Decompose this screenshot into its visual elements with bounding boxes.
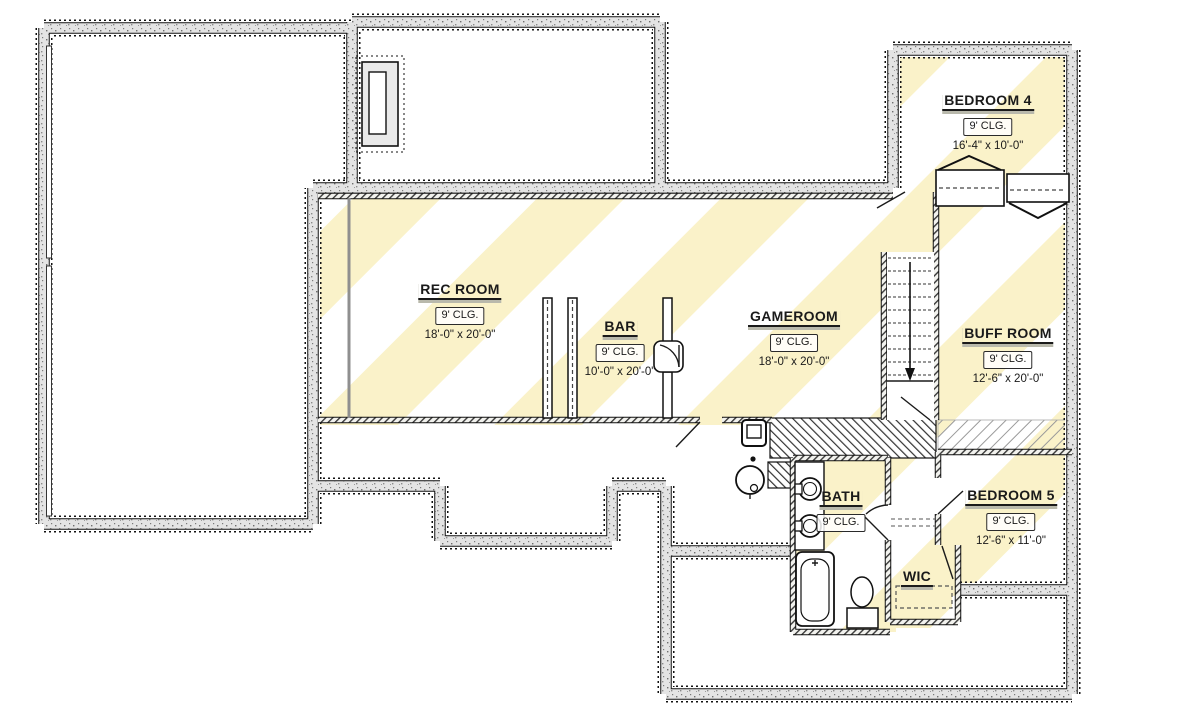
fireplace-foundation: [356, 56, 404, 152]
room-dims: 18'-0" x 20'-0": [418, 329, 501, 342]
room-name: BEDROOM 4: [942, 92, 1034, 111]
label-gameroom: GAMEROOM 9' CLG. 18'-0" x 20'-0": [748, 308, 840, 369]
bathtub: [796, 552, 834, 626]
ceiling-height: 9' CLG.: [770, 334, 819, 352]
floor-plan: BEDROOM 4 9' CLG. 16'-4" x 10'-0" REC RO…: [0, 0, 1184, 718]
room-dims: 12'-6" x 20'-0": [962, 373, 1053, 386]
label-bedroom5: BEDROOM 5 9' CLG. 12'-6" x 11'-0": [965, 487, 1057, 548]
gameroom-door-leaf: [676, 422, 700, 447]
label-bedroom4: BEDROOM 4 9' CLG. 16'-4" x 10'-0": [942, 92, 1034, 153]
room-name: BEDROOM 5: [965, 487, 1057, 506]
room-name: GAMEROOM: [748, 308, 840, 327]
ceiling-height: 9' CLG.: [964, 118, 1013, 136]
room-name: BUFF ROOM: [962, 325, 1053, 344]
ceiling-height: 9' CLG.: [436, 307, 485, 325]
window-ledge-strips: [47, 46, 52, 516]
water-heater: [742, 420, 766, 446]
room-dims: 16'-4" x 10'-0": [942, 140, 1034, 153]
room-dims: 18'-0" x 20'-0": [748, 356, 840, 369]
stairs: [887, 252, 934, 420]
deck-hatch-band: [938, 420, 1072, 450]
ceiling-height: 9' CLG.: [984, 351, 1033, 369]
room-name: BAR: [602, 318, 637, 337]
room-name: REC ROOM: [418, 281, 501, 300]
storage-room-left: [50, 34, 308, 518]
label-rec-room: REC ROOM 9' CLG. 18'-0" x 20'-0": [418, 281, 501, 342]
sump-pump: [736, 456, 764, 499]
ceiling-height: 9' CLG.: [987, 513, 1036, 531]
ceiling-height: 9' CLG.: [596, 344, 645, 362]
storage-room-top: [358, 26, 654, 182]
room-dims: 10'-0" x 20'-0": [585, 366, 656, 379]
room-name: WIC: [901, 568, 933, 587]
room-name: BATH: [819, 488, 862, 507]
label-bath: BATH 9' CLG.: [817, 488, 866, 532]
label-wic: WIC: [901, 568, 933, 587]
label-buff-room: BUFF ROOM 9' CLG. 12'-6" x 20'-0": [962, 325, 1053, 386]
room-dims: 12'-6" x 11'-0": [965, 535, 1057, 548]
ceiling-height: 9' CLG.: [817, 514, 866, 532]
label-bar: BAR 9' CLG. 10'-0" x 20'-0": [585, 318, 656, 379]
